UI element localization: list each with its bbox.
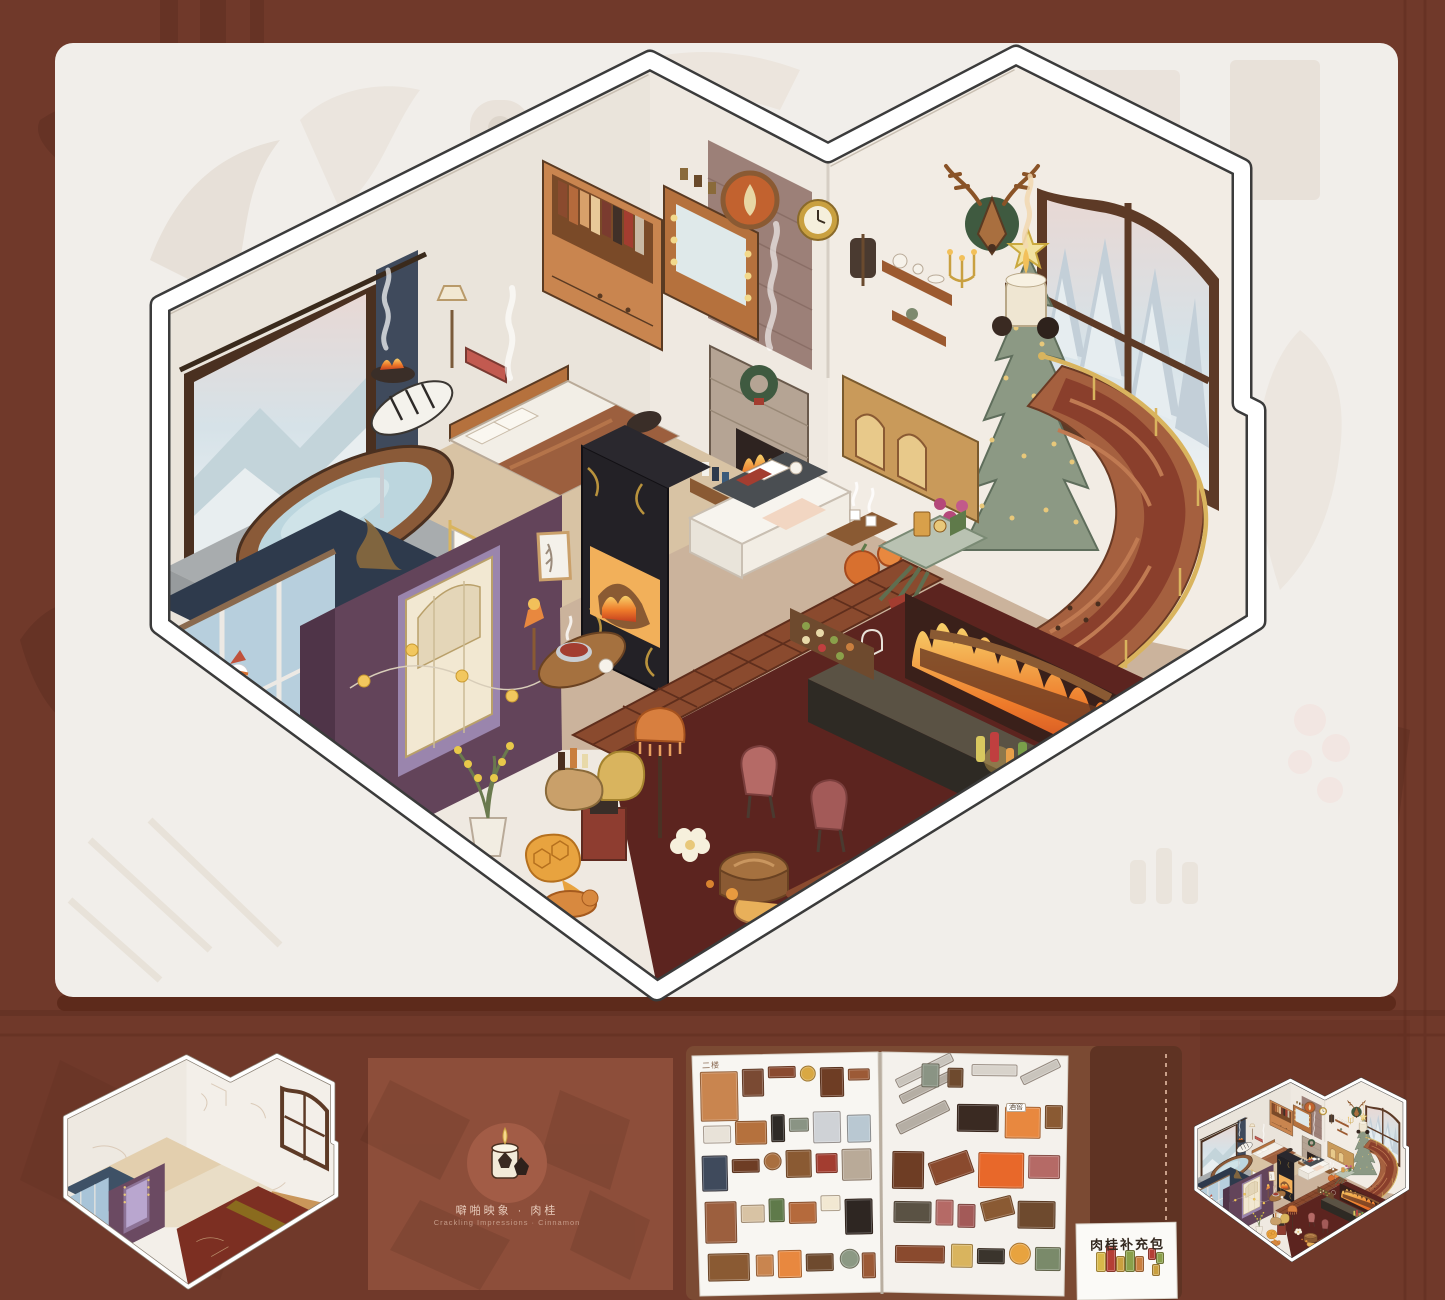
sticker-item: [892, 1151, 925, 1189]
scent-card: [360, 1058, 673, 1290]
product-photo: 噼啪映象 · 肉桂 Crackling Impressions · Cinnam…: [0, 0, 1445, 1300]
right-sheet-stickers: [884, 1059, 1067, 1297]
sticker-item: [768, 1198, 784, 1222]
sticker-item: [1116, 1256, 1125, 1272]
left-sheet-stickers: [696, 1060, 881, 1296]
sticker-item: [895, 1245, 945, 1264]
sticker-item: [893, 1201, 931, 1224]
sticker-item: [785, 1150, 812, 1179]
sticker-item: [704, 1201, 737, 1244]
sticker-item: [895, 1100, 951, 1135]
sticker-item: [839, 1249, 859, 1269]
sticker-item: [977, 1248, 1005, 1264]
sticker-item: [820, 1067, 845, 1097]
sticker-item: [1005, 1106, 1041, 1138]
refill-stickers: [1082, 1226, 1174, 1298]
sticker-item: [703, 1125, 731, 1144]
sticker-item: [732, 1159, 760, 1174]
sticker-item: [763, 1152, 781, 1170]
sticker-item: [848, 1068, 870, 1080]
sticker-item: [847, 1114, 872, 1142]
sticker-item: [927, 1149, 975, 1185]
sticker-item: [742, 1068, 765, 1096]
sticker-item: [980, 1195, 1016, 1222]
sticker-item: [1028, 1155, 1060, 1179]
sticker-item: [921, 1063, 939, 1087]
panel-shadow: [57, 995, 1396, 1011]
sticker-item: [806, 1253, 834, 1272]
sticker-item: [935, 1199, 953, 1225]
sticker-item: [978, 1152, 1024, 1189]
sticker-item: [971, 1064, 1017, 1077]
sticker-item: [702, 1155, 729, 1192]
sticker-item: [957, 1204, 975, 1228]
sticker-item: [815, 1153, 837, 1173]
sticker-item: [1152, 1264, 1160, 1276]
sticker-item: [844, 1198, 873, 1235]
sticker-item: [708, 1253, 751, 1282]
sticker-item: [789, 1201, 817, 1224]
sticker-item: [1125, 1250, 1135, 1272]
sticker-item: [1009, 1242, 1031, 1264]
sticker-item: [800, 1065, 816, 1081]
sticker-item: [1156, 1252, 1164, 1264]
sticker-item: [756, 1254, 774, 1276]
sticker-item: [1019, 1058, 1061, 1086]
sticker-item: [741, 1204, 765, 1222]
sticker-item: [820, 1195, 840, 1211]
sticker-item: [951, 1244, 973, 1268]
sticker-item: [778, 1250, 803, 1278]
sticker-item: [700, 1071, 739, 1122]
sticker-item: [771, 1114, 786, 1142]
sticker-item: [1017, 1201, 1055, 1230]
sticker-item: [947, 1068, 963, 1088]
sticker-item: [841, 1148, 872, 1181]
sticker-item: [735, 1120, 767, 1145]
sticker-item: [1035, 1247, 1061, 1271]
sticker-item: [813, 1111, 842, 1144]
sticker-item: [768, 1066, 796, 1079]
sticker-item: [1045, 1105, 1063, 1129]
sticker-item: [789, 1118, 809, 1132]
sticker-item: [862, 1252, 877, 1278]
sticker-item: [1135, 1256, 1144, 1272]
sticker-item: [957, 1104, 999, 1133]
sticker-item: [1148, 1248, 1156, 1260]
sticker-item: [1096, 1252, 1106, 1272]
sticker-item: [1106, 1246, 1116, 1272]
